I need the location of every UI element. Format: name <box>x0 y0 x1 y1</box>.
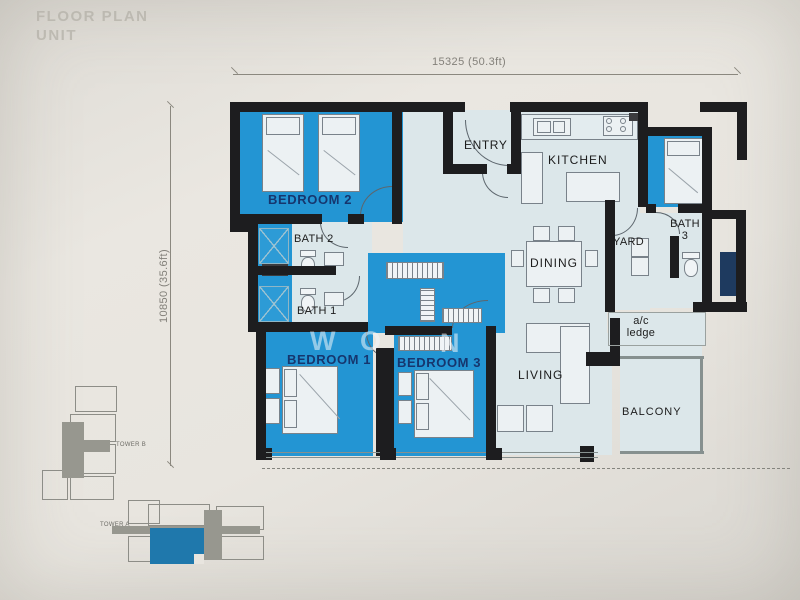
label-ac-line2: ledge <box>620 327 662 339</box>
washer <box>631 257 649 276</box>
label-bath-2: BATH 2 <box>294 233 334 245</box>
keyplan-tower-a: TOWER A <box>108 492 268 574</box>
nightstand <box>264 398 280 424</box>
keyplan-label-tower-b: TOWER B <box>116 442 146 448</box>
pillow <box>416 373 429 400</box>
coffee-table <box>526 405 553 432</box>
balcony-rail <box>620 356 704 359</box>
label-kitchen: KITCHEN <box>548 153 608 167</box>
wall-segment <box>248 322 368 332</box>
wall-segment <box>380 448 396 460</box>
nightstand <box>398 372 412 396</box>
burner <box>606 126 612 132</box>
balcony-rail <box>700 356 703 454</box>
dimension-tick <box>231 67 238 74</box>
wall-segment <box>248 222 258 330</box>
wardrobe <box>386 262 444 279</box>
wall-segment <box>580 446 594 462</box>
wardrobe <box>420 288 435 322</box>
pillow <box>284 369 297 397</box>
label-bath-1: BATH 1 <box>297 305 337 317</box>
toilet-tank <box>682 252 700 259</box>
wall-segment <box>348 214 364 224</box>
wall-segment <box>443 164 487 174</box>
wall-segment <box>443 108 453 172</box>
dining-chair <box>533 226 550 241</box>
pillow <box>266 117 300 135</box>
wall-segment <box>237 214 322 224</box>
wall-segment <box>586 352 620 366</box>
wall-segment <box>736 210 746 312</box>
dining-chair <box>558 226 575 241</box>
sink-bowl <box>537 121 551 133</box>
burner <box>620 118 626 124</box>
window <box>502 457 598 458</box>
window <box>396 452 486 453</box>
wall-segment <box>256 328 266 456</box>
dining-chair <box>558 288 575 303</box>
label-yard: YARD <box>613 236 644 248</box>
core <box>62 422 84 478</box>
setback-dashed-line <box>262 468 790 469</box>
wall-segment <box>510 102 648 112</box>
pillow <box>284 400 297 428</box>
toilet-tank <box>300 250 316 257</box>
sheet-title-line1: FLOOR PLAN <box>36 8 149 25</box>
window <box>266 452 380 453</box>
sink <box>324 292 344 306</box>
dining-chair <box>511 250 524 267</box>
dimension-line-left <box>170 106 171 466</box>
label-dining: DINING <box>530 256 578 270</box>
sink <box>324 252 344 266</box>
dining-chair <box>585 250 598 267</box>
room-balcony <box>620 346 702 452</box>
wall-segment <box>646 204 656 213</box>
service-shaft <box>720 252 736 296</box>
label-entry: ENTRY <box>464 138 507 152</box>
nightstand <box>264 368 280 394</box>
wall-segment <box>693 302 747 312</box>
wall-segment <box>670 236 679 278</box>
wall-segment <box>605 200 615 312</box>
floor-plan-photo: FLOOR PLAN UNIT 15325 (50.3ft) 10850 (35… <box>0 0 800 600</box>
watermark-letter: O <box>360 326 383 357</box>
keyplan-label-tower-a: TOWER A <box>100 522 130 528</box>
wall-segment <box>248 266 336 275</box>
dining-chair <box>533 288 550 303</box>
wall-segment <box>486 326 496 456</box>
label-bedroom-2: BEDROOM 2 <box>268 192 352 207</box>
core <box>204 510 222 560</box>
dimension-label-left: 10850 (35.6ft) <box>158 241 170 331</box>
wall-segment <box>646 127 710 136</box>
kitchen-cabinet <box>521 152 543 204</box>
wall-segment <box>230 102 240 232</box>
sheet-title-line2: UNIT <box>36 27 77 44</box>
burner <box>606 118 612 124</box>
wall-segment <box>737 110 747 160</box>
watermark-letter: W <box>310 326 337 357</box>
dimension-line-top <box>233 74 738 75</box>
wall-segment <box>638 102 648 207</box>
window <box>266 457 380 458</box>
watermark-letter: N <box>440 328 462 359</box>
shower <box>259 286 289 322</box>
pillow <box>322 117 356 135</box>
wardrobe <box>442 308 482 323</box>
window <box>502 452 598 453</box>
label-ac-line1: a/c <box>626 315 656 327</box>
label-bath-3-line1: BATH <box>668 218 702 230</box>
wall-segment <box>486 448 502 460</box>
pillow <box>667 141 700 156</box>
wall-segment <box>376 348 394 456</box>
coffee-table <box>497 405 524 432</box>
toilet-bowl <box>684 259 698 277</box>
dimension-tick <box>734 67 741 74</box>
label-bath-3-line2: 3 <box>668 230 702 242</box>
dimension-label-top: 15325 (50.3ft) <box>432 56 506 68</box>
burner <box>620 126 626 132</box>
shower <box>259 228 289 264</box>
keyplan-tower-b: TOWER B <box>28 382 148 502</box>
balcony-rail <box>620 451 704 454</box>
wall-segment <box>392 108 402 224</box>
window <box>396 457 486 458</box>
kitchen-island <box>566 172 620 202</box>
kitchen-corner-unit <box>629 113 638 121</box>
toilet-tank <box>300 288 316 295</box>
wall-segment <box>256 448 272 460</box>
wall-segment <box>702 127 712 213</box>
hall-foyer <box>403 110 448 225</box>
label-living: LIVING <box>518 368 563 382</box>
nightstand <box>398 400 412 424</box>
pillow <box>416 403 429 430</box>
wall-segment <box>702 210 712 312</box>
sink-bowl <box>553 121 565 133</box>
label-balcony: BALCONY <box>622 406 682 418</box>
wall-segment <box>511 108 521 170</box>
wall-segment <box>230 102 465 112</box>
